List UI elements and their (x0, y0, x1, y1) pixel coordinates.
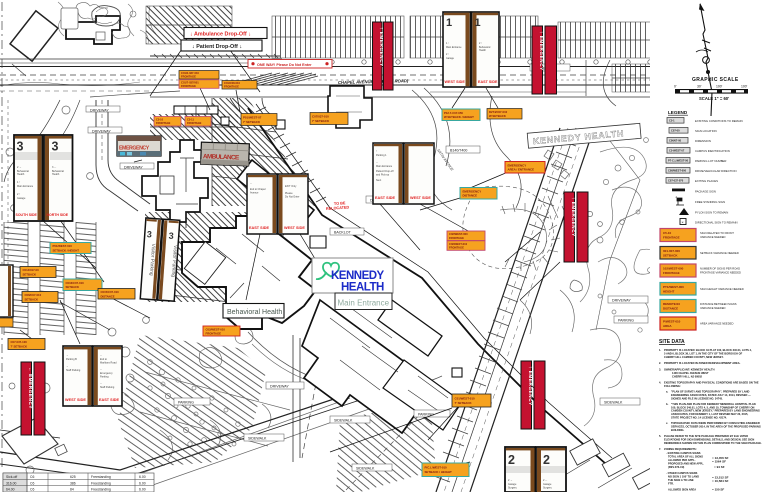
svg-text:ELEVATIONS FOR SIGN DIMENSIONS: ELEVATIONS FOR SIGN DIMENSIONS, DETAILS,… (664, 437, 754, 441)
svg-text:= 1564 SF: = 1564 SF (712, 459, 726, 463)
svg-text:C01/WEST-010: C01/WEST-010 (455, 396, 475, 400)
svg-text:EXISTING CONDITIONS TO REMAIN: EXISTING CONDITIONS TO REMAIN (695, 119, 743, 123)
svg-text:Parking 1: Parking 1 (376, 154, 387, 157)
svg-text:SIDEWALK: SIDEWALK (248, 437, 267, 441)
svg-text:Marlboro Road: Marlboro Road (100, 361, 117, 364)
svg-text:CHERRY HILL CAMDEN COUNTY, NEW: CHERRY HILL CAMDEN COUNTY, NEW JERSEY. (664, 355, 724, 359)
svg-text:2 ↑: 2 ↑ (446, 53, 449, 56)
svg-text:↑: ↑ (376, 150, 377, 153)
svg-text:FRONTAGE: FRONTAGE (449, 236, 464, 240)
svg-text:KENNEDY: KENNEDY (331, 270, 385, 282)
svg-text:3: 3 (168, 231, 174, 241)
svg-text:FRONTAGE: FRONTAGE (224, 85, 239, 89)
svg-text:DRIVEWAY: DRIVEWAY (90, 109, 109, 113)
svg-text:FOLLOWING:: FOLLOWING: (664, 384, 681, 388)
svg-text:↑ EMERGENCY: ↑ EMERGENCY (379, 27, 384, 67)
svg-text:GRAPHIC SCALE: GRAPHIC SCALE (692, 77, 739, 83)
svg-text:Freestanding: Freestanding (91, 475, 111, 479)
svg-text:REMOTE/10: REMOTE/10 (663, 302, 680, 306)
svg-text:Main Entrance: Main Entrance (446, 46, 462, 49)
svg-text:6.00: 6.00 (139, 481, 146, 485)
svg-text:3: 3 (146, 229, 152, 239)
svg-text:Do Not Enter: Do Not Enter (285, 195, 300, 198)
svg-text:←: ← (100, 354, 103, 357)
svg-text:DRIVEWAY: DRIVEWAY (612, 299, 631, 303)
svg-text:NUMBER OF SIGNS PER ROAD: NUMBER OF SIGNS PER ROAD (700, 267, 740, 271)
svg-text:b.: b. (666, 402, 669, 406)
svg-text:BACKLOT: BACKLOT (334, 231, 352, 235)
svg-text:AREA / ENTRANCE: AREA / ENTRANCE (508, 168, 535, 172)
svg-text:SIGNED AND FILE IN LICENSE NO.: SIGNED AND FILE IN LICENSE NO. 24745. (671, 396, 723, 400)
svg-text:C02/WEST-000: C02/WEST-000 (449, 232, 468, 236)
svg-text:3: 3 (17, 140, 24, 154)
svg-text:EAST SIDE: EAST SIDE (249, 226, 270, 230)
svg-text:STATE PROJECT NO. 14 LICENSE N: STATE PROJECT NO. 14 LICENSE NO. 42174. (671, 416, 727, 420)
svg-text:C08/WEST-000: C08/WEST-000 (668, 169, 687, 173)
svg-text:Freestanding: Freestanding (91, 481, 111, 485)
svg-text:3.: 3. (659, 368, 661, 372)
svg-text:DISTANCE: DISTANCE (463, 194, 478, 198)
svg-text:6.00: 6.00 (139, 488, 146, 492)
svg-text:SETBACK / HEIGHT: SETBACK / HEIGHT (53, 248, 80, 252)
svg-text:Health: Health (479, 49, 487, 52)
svg-text:7.: 7. (659, 447, 661, 451)
svg-text:Health: Health (17, 173, 25, 176)
svg-text:1 ↑: 1 ↑ (446, 42, 449, 45)
svg-text:PARKING: PARKING (618, 319, 634, 323)
svg-text:2: 2 (543, 453, 550, 467)
svg-text:= 150 SF: = 150 SF (712, 487, 724, 491)
svg-text:ALLOWED PER APPL.: ALLOWED PER APPL. (668, 458, 696, 462)
svg-text:3 ←: 3 ← (52, 166, 57, 169)
svg-text:C06/07-00: C06/07-00 (669, 139, 682, 143)
svg-text:6.00: 6.00 (139, 475, 146, 479)
svg-text:→: → (66, 354, 69, 357)
svg-text:EXITING PLACES: EXITING PLACES (695, 179, 718, 183)
svg-text:Surgery: Surgery (508, 486, 518, 489)
svg-text:FRONTAGE: FRONTAGE (663, 236, 680, 240)
svg-text:AREA: AREA (663, 324, 672, 328)
svg-text:SOUTH SIDE: SOUTH SIDE (16, 213, 38, 217)
svg-text:FRONTAGE: FRONTAGE (206, 332, 222, 336)
svg-text:Health: Health (52, 173, 60, 176)
svg-text:Garage: Garage (17, 197, 26, 200)
svg-text:7' SETBACK: 7' SETBACK (243, 120, 261, 124)
svg-text:B140/7400: B140/7400 (450, 149, 467, 153)
svg-text:2 →: 2 → (508, 479, 513, 482)
svg-text:EXIT Only: EXIT Only (285, 185, 297, 188)
svg-text:SETBACK: SETBACK (25, 297, 39, 301)
svg-text:TOTAL AREA OF ALL SIGNS: TOTAL AREA OF ALL SIGNS (668, 455, 703, 459)
svg-text:Staff Parking: Staff Parking (66, 369, 81, 372)
svg-text:DRIVEWAY: DRIVEWAY (92, 130, 111, 134)
svg-text:DRIVE/VEHICULAR DIRECTION: DRIVE/VEHICULAR DIRECTION (695, 169, 737, 173)
svg-text:BUILDING.: BUILDING. (671, 428, 685, 432)
svg-text:FRONTAGE: FRONTAGE (156, 121, 171, 125)
svg-text:Parking B: Parking B (66, 358, 77, 361)
svg-text:TOPOGRAPHIC DATA WERE PERFORME: TOPOGRAPHIC DATA WERE PERFORMED BY CONSU… (671, 421, 760, 425)
svg-text:WEST SIDE: WEST SIDE (284, 226, 305, 230)
svg-text:VARIANCE NEEDED: VARIANCE NEEDED (700, 235, 726, 239)
svg-text:Main Entrance: Main Entrance (338, 299, 390, 308)
svg-text:←: ← (100, 368, 103, 371)
svg-text:DIRECTIONAL SIGN TO REMAIN: DIRECTIONAL SIGN TO REMAIN (695, 221, 738, 225)
svg-text:0': 0' (674, 85, 677, 89)
svg-text:RENDERINGS SHOWN ON THIS PLAN: RENDERINGS SHOWN ON THIS PLAN CORRESPOND… (664, 441, 762, 445)
svg-text:2.: 2. (659, 361, 661, 365)
svg-text:C01/2-037-010: C01/2-037-010 (181, 71, 199, 75)
svg-text:"THIS PLAN AND PLAN FOR KENNED: "THIS PLAN AND PLAN FOR KENNEDY MEMORIAL… (671, 402, 756, 406)
svg-text:C02/NEXT-010: C02/NEXT-010 (449, 242, 468, 246)
svg-text:EAST SIDE: EAST SIDE (99, 398, 120, 402)
svg-text:▲: ▲ (675, 196, 677, 199)
svg-text:SCALE 1" = 60': SCALE 1" = 60' (699, 96, 729, 101)
svg-text:ONE WAY! Please Do Not Enter: ONE WAY! Please Do Not Enter (257, 63, 312, 67)
svg-text:C5-1: C5-1 (669, 119, 675, 123)
svg-text:NORTH SIDE: NORTH SIDE (47, 213, 69, 217)
svg-text:LEGEND: LEGEND (668, 110, 688, 115)
svg-text:CAMPUS IDENTIFICATION: CAMPUS IDENTIFICATION (695, 149, 730, 153)
svg-text:↓ Ambulance Drop-Off ↓: ↓ Ambulance Drop-Off ↓ (190, 32, 251, 38)
svg-text:P01/WEST-07: P01/WEST-07 (243, 115, 262, 119)
svg-text:←: ← (376, 161, 379, 164)
svg-text:ASSOCIATES, FOR KENNEDY 1, LAS: ASSOCIATES, FOR KENNEDY 1, LAST REVISED … (671, 412, 748, 416)
svg-text:2: 2 (508, 453, 515, 467)
svg-text:SIGN RELATED TO FRONT: SIGN RELATED TO FRONT (700, 231, 734, 235)
svg-text:Parking: Parking (100, 375, 109, 378)
svg-text:P/WEST-010: P/WEST-010 (663, 320, 681, 324)
svg-text:C5-11: C5-11 (187, 117, 194, 121)
svg-text:PYLON SIGN TO REMAIN: PYLON SIGN TO REMAIN (695, 211, 728, 215)
svg-text:VARIANCE NEEDED: VARIANCE NEEDED (700, 306, 726, 310)
svg-text:SIDEWALK: SIDEWALK (604, 401, 623, 405)
svg-text:↑ EMERGENCY: ↑ EMERGENCY (539, 31, 544, 71)
svg-text:= 10,584 SF: = 10,584 SF (712, 479, 729, 483)
svg-text:DISTANCE BETWEEN SIGNS: DISTANCE BETWEEN SIGNS (700, 302, 737, 306)
svg-text:Avenue: Avenue (250, 191, 259, 194)
svg-text:FRONTAGE: FRONTAGE (181, 75, 196, 79)
svg-text:→: → (66, 365, 69, 368)
svg-text:C6: C6 (30, 488, 34, 492)
svg-text:W SETBACK / HEIGHT: W SETBACK / HEIGHT (444, 115, 474, 119)
svg-text:P/C.L/WEST-010: P/C.L/WEST-010 (425, 466, 448, 470)
svg-text:100': 100' (716, 85, 723, 89)
svg-text:SIDEWALK: SIDEWALK (334, 419, 353, 423)
svg-text:C07/037-010: C07/037-010 (312, 114, 329, 118)
svg-text:and Pick-up: and Pick-up (376, 173, 390, 176)
svg-text:NO SIGN 1 100' TO LAND: NO SIGN 1 100' TO LAND (668, 475, 699, 479)
svg-text:PT1/WEST-000: PT1/WEST-000 (663, 285, 684, 289)
svg-text:EAST SIDE: EAST SIDE (478, 80, 498, 84)
svg-text:← EMERGENCY: ← EMERGENCY (28, 367, 33, 409)
svg-text:←: ← (100, 382, 103, 385)
svg-text:EMERGENCY: EMERGENCY (119, 146, 150, 152)
svg-text:SIGN LOCATION: SIGN LOCATION (695, 129, 717, 133)
svg-text:PROPERTY IS LOCATED: BLOCK 34: PROPERTY IS LOCATED: BLOCK 34 PLAT 100, … (664, 348, 752, 352)
svg-text:FRONTAGE: FRONTAGE (181, 84, 196, 88)
svg-text:PARKING: PARKING (418, 413, 434, 417)
svg-text:DISTANCE: DISTANCE (101, 294, 115, 298)
svg-text:- OTHER CAMPUS SIGNS: - OTHER CAMPUS SIGNS (666, 471, 698, 475)
svg-text:↑ EMERGENCY: ↑ EMERGENCY (528, 366, 533, 406)
svg-text:C5-WEST-07: C5-WEST-07 (669, 149, 685, 153)
svg-text:ENGINEERING ASSOCIATES, DATED: ENGINEERING ASSOCIATES, DATED JULY 14, 2… (671, 393, 751, 397)
svg-text:a.: a. (666, 391, 668, 394)
svg-text:1: 1 (475, 17, 481, 29)
svg-text:Behavioral Health: Behavioral Health (227, 309, 282, 316)
svg-text:SETBACK VARIANCE NEEDED: SETBACK VARIANCE NEEDED (700, 251, 739, 255)
svg-text:C01/7-037/001: C01/7-037/001 (181, 80, 199, 84)
svg-text:DISTANCE: DISTANCE (663, 307, 678, 311)
svg-text:C5-10: C5-10 (156, 117, 164, 121)
svg-text:×: × (682, 220, 684, 224)
svg-text:1400 CHAPEL AVENUE WEST: 1400 CHAPEL AVENUE WEST (672, 371, 709, 375)
svg-text:100, BLOCK 340.01, LOTS 4, 5,: 100, BLOCK 340.01, LOTS 4, 5, AND 10, TO… (671, 405, 755, 409)
svg-text:Main Entrance: Main Entrance (376, 165, 393, 168)
svg-text:AMBULANCE: AMBULANCE (203, 153, 240, 161)
svg-text:Sick-off: Sick-off (6, 475, 17, 479)
svg-text:64.00: 64.00 (6, 488, 15, 492)
svg-text:1 ↑: 1 ↑ (17, 181, 20, 184)
svg-text:P7-C.L/WEST-00: P7-C.L/WEST-00 (668, 159, 689, 163)
svg-text:2 ↑: 2 ↑ (479, 42, 482, 45)
svg-text:CAMDEN COUNTY, NEW JERSEY," PR: CAMDEN COUNTY, NEW JERSEY," PREPARED BY … (671, 409, 760, 413)
svg-text:3: 3 (52, 140, 59, 154)
svg-text:C07-037-070: C07-037-070 (668, 179, 684, 183)
svg-text:ZONING REQUIREMENTS:: ZONING REQUIREMENTS: (664, 447, 697, 451)
svg-text:SERVICES, OCTOBER 2014, IN THE: SERVICES, OCTOBER 2014, IN THE AREA OF T… (671, 425, 761, 429)
svg-text:PACKAGE SIGN: PACKAGE SIGN (695, 190, 716, 194)
svg-text:5.: 5. (659, 434, 661, 438)
svg-text:FRONTAGE: FRONTAGE (663, 271, 680, 275)
svg-text:Main Entrance: Main Entrance (17, 185, 34, 188)
svg-text:HEALTH: HEALTH (341, 282, 384, 294)
svg-text:30': 30' (697, 85, 702, 89)
svg-text:SETBACK / HEIGHT: SETBACK / HEIGHT (425, 470, 453, 474)
svg-text:- EXISTING CAMPUS SIGNS: - EXISTING CAMPUS SIGNS (666, 451, 701, 455)
svg-text:"PLAN OF SURVEY AND TOPOGRAPHY: "PLAN OF SURVEY AND TOPOGRAPHY", PREPARE… (671, 390, 749, 394)
svg-text:OWNER/APPLICANT: KENNEDY HEAL: OWNER/APPLICANT: KENNEDY HEALTH (664, 368, 715, 372)
svg-text:SETBACK: SETBACK (66, 285, 80, 289)
svg-text:FRONTAGE: FRONTAGE (187, 121, 202, 125)
svg-text:001-007-000: 001-007-000 (663, 249, 680, 253)
svg-text:HEIGHT: HEIGHT (663, 290, 675, 294)
svg-text:DRIVEWAY: DRIVEWAY (124, 166, 143, 170)
svg-text:C6: C6 (30, 481, 34, 485)
svg-text:PARKING LOT NUMBER: PARKING LOT NUMBER (695, 159, 726, 163)
svg-text:PLEASE REFER TO THE SITE PACKA: PLEASE REFER TO THE SITE PACKAGE PREPARE… (664, 434, 748, 438)
svg-text:PROPERTY IS LOCATED IN ZONED R: PROPERTY IS LOCATED IN ZONED REDEVELOPME… (664, 361, 741, 365)
svg-text:WEST SIDE: WEST SIDE (410, 196, 431, 200)
svg-text:Freestanding: Freestanding (91, 488, 111, 492)
svg-text:SETBACK: SETBACK (663, 254, 678, 258)
svg-text:5 AND 6, BLOCK 36, LOT 1, IN T: 5 AND 6, BLOCK 36, LOT 1, IN THE CITY OF… (664, 351, 743, 355)
svg-text:C01/C08-010: C01/C08-010 (224, 81, 240, 85)
svg-text:↑ EMERGENCY: ↑ EMERGENCY (571, 197, 576, 237)
svg-text:FTR.: FTR. (668, 481, 674, 485)
svg-text:WEST SIDE: WEST SIDE (65, 398, 86, 402)
svg-text:316.00: 316.00 (6, 481, 16, 485)
svg-text:= 94 SF: = 94 SF (714, 465, 725, 469)
svg-text:2 ↑: 2 ↑ (17, 193, 20, 196)
svg-text:2 →: 2 → (17, 166, 22, 169)
svg-text:Surgery: Surgery (543, 486, 553, 489)
svg-text:FRONTAGE VARIANCE NEEDED: FRONTAGE VARIANCE NEEDED (700, 271, 741, 275)
svg-text:FRONTAGE: FRONTAGE (449, 246, 464, 250)
svg-text:SIGN HEIGHT VARIANCE NEEDED: SIGN HEIGHT VARIANCE NEEDED (700, 287, 744, 291)
svg-text:Next: Next (376, 179, 381, 182)
svg-text:PARKING: PARKING (178, 401, 194, 405)
svg-text:625: 625 (70, 475, 76, 479)
svg-text:102/WEST-000: 102/WEST-000 (663, 267, 684, 271)
svg-text:7' SETBACK: 7' SETBACK (312, 119, 330, 123)
svg-text:CHERRY HILL, NJ 08002: CHERRY HILL, NJ 08002 (672, 374, 703, 378)
svg-text:EXISTING TOPOGRAPHY AND PHYSIC: EXISTING TOPOGRAPHY AND PHYSICAL CONDITI… (664, 381, 759, 385)
svg-text:7' SETBACK: 7' SETBACK (455, 401, 473, 405)
svg-text:←: ← (250, 182, 253, 185)
svg-text:DIMENSION: DIMENSION (695, 139, 711, 143)
svg-text:DRIVEWAY: DRIVEWAY (270, 385, 289, 389)
svg-text:1.: 1. (659, 348, 661, 352)
svg-text:SETBACK: SETBACK (23, 272, 37, 276)
svg-text:THE SIGN A TO LINE: THE SIGN A TO LINE (668, 478, 694, 482)
svg-text:7' SETBACK: 7' SETBACK (11, 344, 28, 348)
svg-text:2 ←: 2 ← (543, 479, 548, 482)
svg-text:c.: c. (666, 422, 668, 425)
svg-text:(REV-073-C9): (REV-073-C9) (668, 465, 684, 469)
svg-text:PROPOSED AND NEW APPL.: PROPOSED AND NEW APPL. (668, 461, 704, 465)
svg-text:84: 84 (70, 488, 74, 492)
svg-text:↓ Patient Drop-Off ↓: ↓ Patient Drop-Off ↓ (192, 44, 242, 50)
svg-text:C6: C6 (30, 475, 34, 479)
svg-text:Staff Parking: Staff Parking (100, 386, 115, 389)
svg-text:1: 1 (446, 17, 452, 29)
svg-text:386: 386 (70, 481, 76, 485)
svg-text:WEST SIDE: WEST SIDE (445, 80, 466, 84)
svg-text:C5-10: C5-10 (663, 231, 672, 235)
svg-text:W SETBACK: W SETBACK (489, 114, 506, 118)
svg-text:EAST SIDE: EAST SIDE (375, 196, 396, 200)
svg-text:100': 100' (741, 85, 748, 89)
svg-text:SIDEWALK: SIDEWALK (356, 467, 375, 471)
svg-text:AREA VARIANCE NEEDED: AREA VARIANCE NEEDED (700, 322, 733, 326)
svg-text:4.: 4. (659, 381, 661, 385)
svg-text:ALLOWED SIGN AREA: ALLOWED SIGN AREA (668, 487, 696, 491)
svg-text:C07-00: C07-00 (671, 129, 680, 133)
svg-text:Garage: Garage (446, 57, 455, 60)
svg-text:FREE STANDING SIGN: FREE STANDING SIGN (695, 200, 725, 204)
